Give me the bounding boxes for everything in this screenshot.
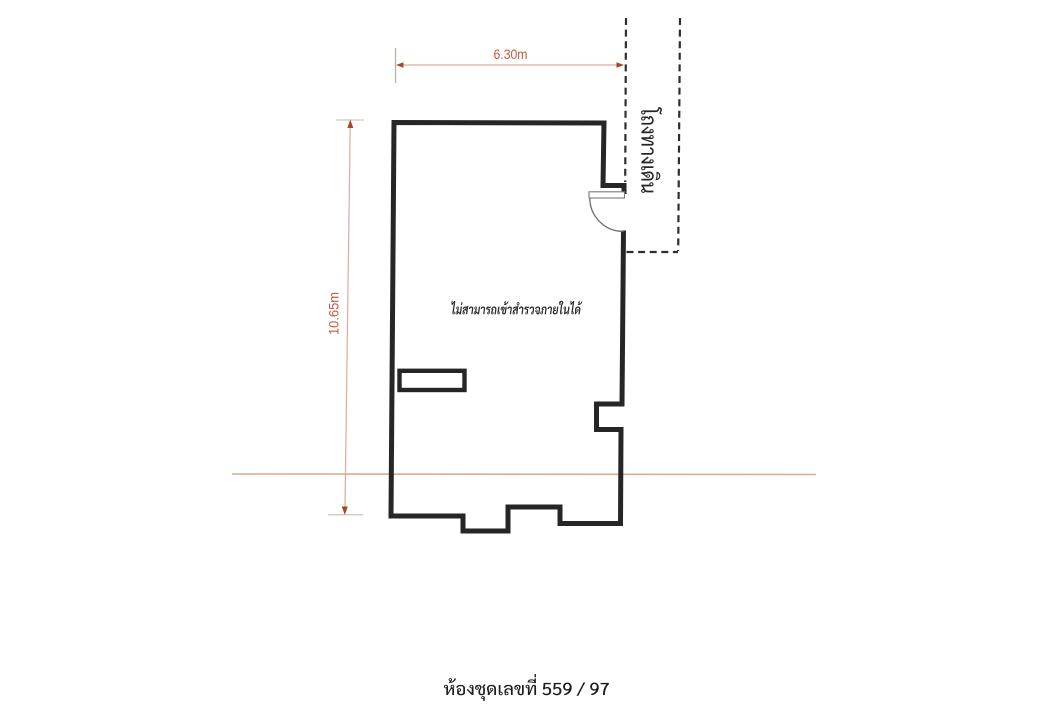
svg-text:6.30m: 6.30m	[494, 47, 528, 62]
svg-text:10.65m: 10.65m	[327, 292, 342, 335]
